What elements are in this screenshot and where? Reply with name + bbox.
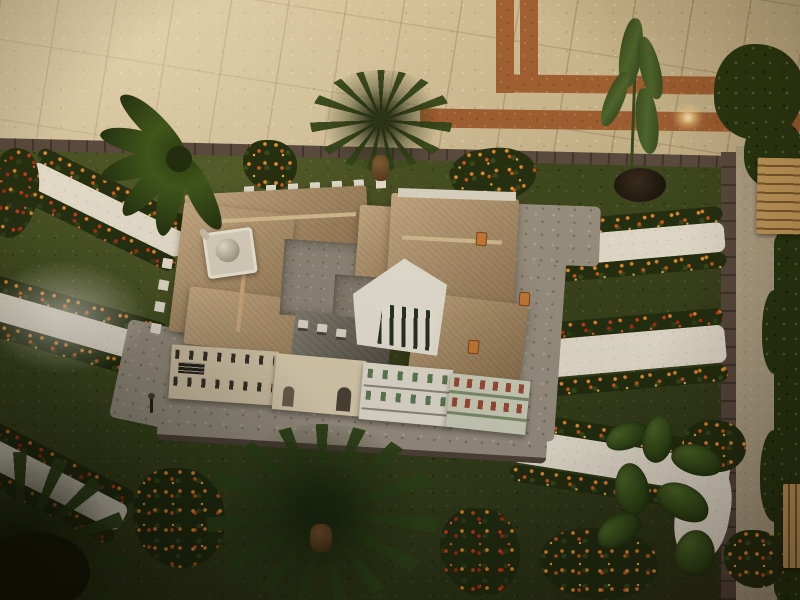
facade-sign xyxy=(178,362,205,375)
sago-palm-trunk xyxy=(372,155,389,181)
leaf xyxy=(596,69,634,130)
bench-bottom-right xyxy=(783,484,800,568)
window-row xyxy=(173,377,272,393)
ficus-plant-bottom-right xyxy=(585,415,745,590)
facade-green-brick xyxy=(445,373,530,435)
leaf xyxy=(668,439,726,481)
shutter-row xyxy=(367,369,447,385)
cupola-dome xyxy=(214,237,241,264)
facade-door xyxy=(336,387,352,412)
sago-palm-trunk xyxy=(310,524,332,552)
facade-cream xyxy=(168,344,279,405)
portico-columns xyxy=(378,304,438,352)
chimney xyxy=(475,232,487,247)
facade-beige xyxy=(272,353,367,417)
lamp-reflection xyxy=(681,112,695,123)
leaf xyxy=(672,527,718,578)
chimney xyxy=(519,292,531,307)
balcony-ledge xyxy=(362,407,448,416)
chimney xyxy=(467,340,479,355)
plant-pot xyxy=(614,168,666,202)
dormer-window xyxy=(316,324,327,336)
plant-base xyxy=(166,146,192,172)
miniature-lamppost xyxy=(150,397,153,413)
bird-of-paradise-left xyxy=(88,50,198,195)
facade-white-shutters xyxy=(359,362,454,427)
lamppost-head xyxy=(148,393,155,399)
facade-door xyxy=(282,386,295,407)
model-garden-photo xyxy=(0,0,800,600)
portico xyxy=(346,252,450,356)
cupola xyxy=(202,227,258,280)
leaf xyxy=(612,461,653,517)
leaf xyxy=(650,474,715,530)
bird-of-paradise-tall xyxy=(602,18,678,203)
shutter-row xyxy=(365,391,445,407)
bench-top-right xyxy=(756,158,800,235)
sago-palm-bottom xyxy=(206,424,438,600)
dormer-window xyxy=(335,329,346,341)
dormer-window xyxy=(297,320,308,332)
